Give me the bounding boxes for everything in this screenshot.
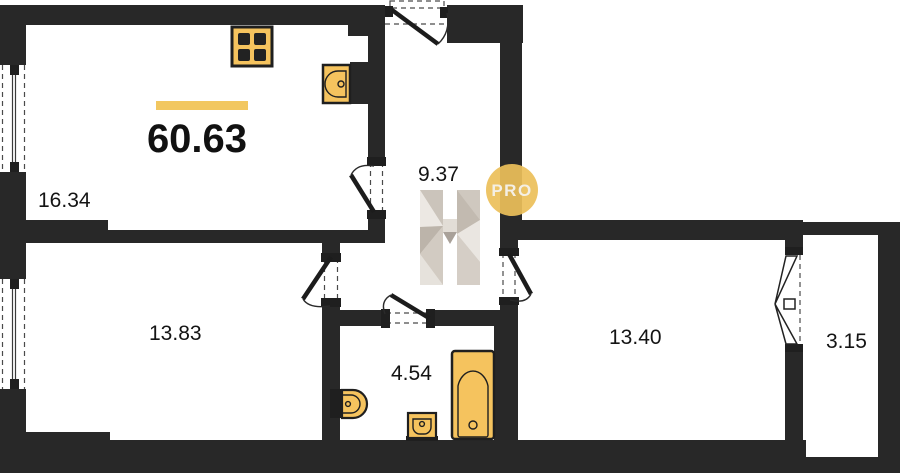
h-crossbar-facet — [443, 232, 457, 244]
wall-balcony-divider-bottom — [785, 346, 803, 457]
window-frame-tab — [10, 379, 19, 389]
wall-top-left — [0, 5, 385, 25]
stove-burner — [254, 49, 266, 61]
wall-bottom-left — [0, 432, 110, 473]
door-leaf — [391, 295, 429, 318]
stove-burner — [254, 33, 266, 45]
bathtub-icon — [452, 351, 494, 439]
floor-plan-page: PRO 60.63 16.34 9.37 13.83 4.54 13.40 3.… — [0, 0, 900, 473]
wall-left-upper — [0, 5, 26, 65]
room-area-bedroom-left: 13.83 — [149, 322, 202, 345]
bedroom-right-door — [499, 248, 531, 305]
stove-body — [232, 27, 272, 66]
entrance-door — [385, 1, 448, 44]
door-jamb-tab — [785, 344, 803, 352]
pro-badge-label: PRO — [491, 181, 532, 200]
room-area-bedroom-right: 13.40 — [609, 326, 662, 349]
window-left-top — [3, 65, 25, 172]
wall-left-mid — [0, 172, 26, 279]
wall-bottom-main — [106, 440, 806, 473]
balcony-door-leaf-top — [775, 256, 797, 304]
toilet-icon — [330, 389, 367, 418]
door-leaf — [509, 254, 531, 294]
wall-balcony-bottom — [803, 457, 900, 473]
h-crossbar — [443, 219, 457, 232]
wall-divider-left — [26, 220, 108, 243]
door-jamb-tab — [367, 157, 386, 166]
stove-burner — [238, 49, 250, 61]
door-jamb-tab — [367, 210, 386, 219]
door-leaf — [303, 257, 331, 299]
stove-burner — [238, 33, 250, 45]
wall-balcony-right — [878, 222, 900, 473]
balcony-door-handle — [784, 299, 795, 309]
balcony-door — [775, 247, 803, 352]
room-area-hallway: 9.37 — [418, 163, 459, 186]
floor-plan: PRO 60.63 16.34 9.37 13.83 4.54 13.40 3.… — [0, 0, 900, 473]
wall-bath-top-right — [428, 310, 500, 326]
door-leaf — [392, 10, 438, 44]
window-frame-tab — [10, 65, 19, 75]
kitchen-sink-icon — [323, 65, 350, 103]
wall-bath-left — [322, 315, 340, 445]
pro-badge: PRO — [486, 164, 538, 216]
window-frame-tab — [10, 279, 19, 289]
wall-bath-right — [494, 322, 518, 455]
window-left-bottom — [3, 279, 25, 389]
wall-sink-stub — [350, 62, 368, 104]
stove-icon — [232, 27, 272, 66]
h-letter-logo — [420, 190, 480, 285]
door-jamb-tab — [440, 7, 448, 18]
wall-bedroomright-top — [500, 220, 803, 240]
door-jamb-tab — [785, 247, 803, 255]
total-area-label: 60.63 — [147, 117, 247, 161]
room-area-living-kitchen: 16.34 — [38, 189, 91, 212]
entrance-opening-dash — [390, 1, 444, 8]
wall-divider-right — [108, 230, 385, 243]
door-jamb-tab — [381, 309, 390, 328]
kitchen-door — [351, 157, 386, 219]
window-frame-tab — [10, 162, 19, 172]
wall-kitchen-right-stub — [348, 22, 385, 36]
room-area-balcony: 3.15 — [826, 330, 867, 353]
total-area-accent-bar — [156, 101, 248, 110]
washbasin-icon — [406, 413, 438, 441]
balcony-door-leaf-bottom — [775, 304, 797, 344]
toilet-tank — [330, 389, 342, 418]
bathroom-door — [381, 295, 435, 328]
bedroom-left-door — [303, 253, 341, 307]
door-jamb-tab — [321, 298, 341, 307]
room-area-bathroom: 4.54 — [391, 362, 432, 385]
